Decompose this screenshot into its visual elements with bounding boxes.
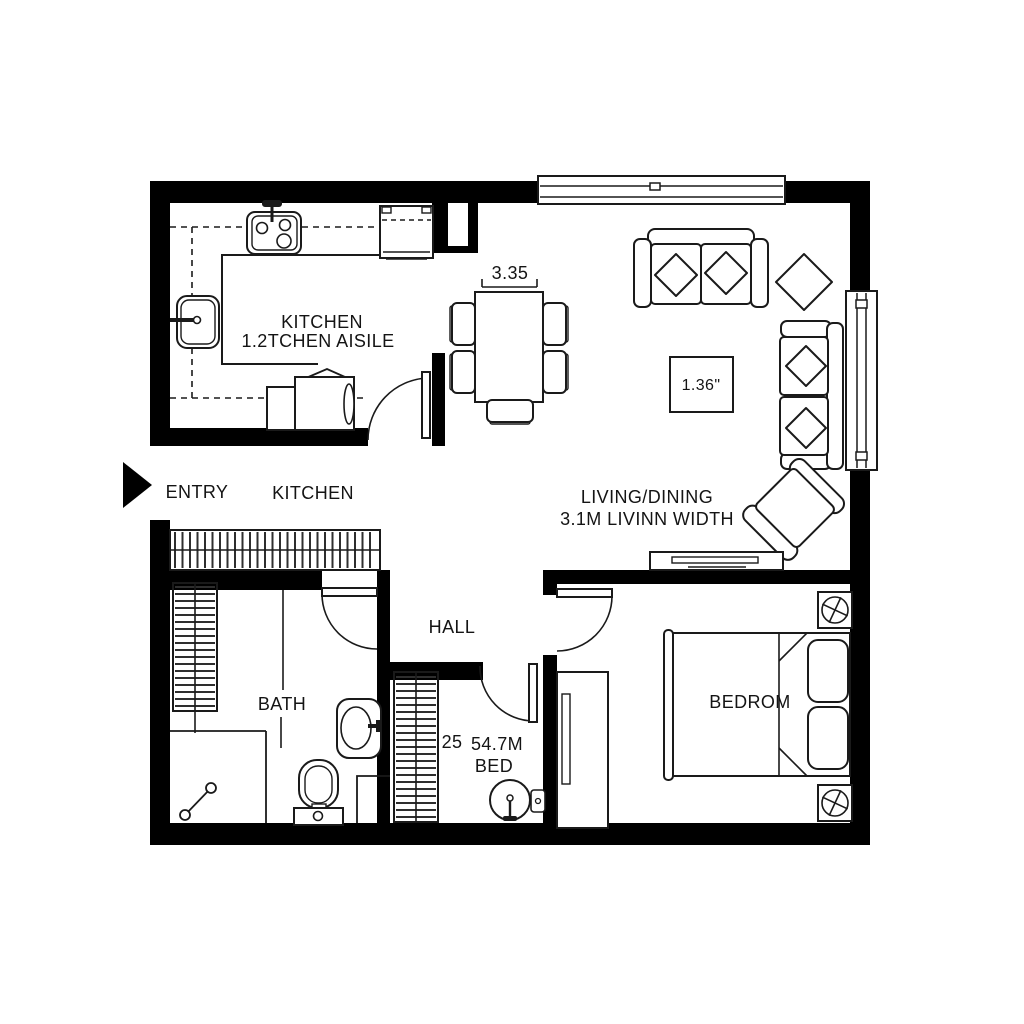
dining-chair [543,351,568,393]
duct-niche-hollow [448,203,468,246]
wall-kitchen-stub [432,353,445,446]
label-living-sub: 3.1M LIVINN WIDTH [560,509,734,529]
wc-door [480,664,537,722]
floor-plan-drawing: KITCHEN 1.2TCHEN AISILE 3.35 1.36" LIVIN… [0,0,1024,1024]
wc-shower-hatch [394,672,438,822]
bath-door [322,588,377,649]
label-entry-kitchen: KITCHEN [272,483,354,503]
dining-table [475,292,543,402]
label-kitchen-title: KITCHEN [281,312,363,332]
bed-pillow [808,640,848,702]
sofa-top [634,229,768,307]
armchair [740,456,847,563]
bath-partition-line [281,590,283,748]
kitchen-sink [247,201,301,254]
floor-plan-canvas: KITCHEN 1.2TCHEN AISILE 3.35 1.36" LIVIN… [0,0,1024,1024]
nightstand [816,591,853,628]
wall-right-lower [850,466,870,823]
entry-arrow-icon [123,462,152,508]
prep-sink [170,296,219,348]
shower-area [170,731,266,823]
floor-cushion [776,254,832,310]
label-kitchen-sub: 1.2TCHEN AISILE [241,331,394,351]
bedroom-furniture [557,591,854,828]
wall-top-left [150,181,540,203]
label-dining-width: 3.35 [492,263,529,283]
label-bedroom: BEDROM [709,692,790,712]
wall-bedroom-stub [543,570,557,595]
entry-closet [170,530,380,570]
label-hall: HALL [429,617,476,637]
label-wc-number: 25 [442,732,463,752]
label-entry: ENTRY [166,482,229,502]
dining-chair [543,303,568,345]
wall-left-lower [150,520,170,845]
kitchen-door [368,372,430,440]
tv-console [650,552,783,570]
wardrobe [557,672,608,828]
nightstand [816,784,853,821]
kitchen-island-desk [267,369,354,430]
window-right [846,291,877,470]
stove [380,206,433,259]
wall-left-upper [150,181,170,446]
label-wc-bed: BED [475,756,513,776]
label-bath: BATH [258,694,306,714]
wall-right-upper [850,203,870,295]
sofa-right [780,321,843,469]
dining-chair [450,303,475,345]
wall-bottom [150,823,870,845]
wall-living-bottom [557,570,870,584]
wc-toilet [490,780,545,821]
label-wc-area: 54.7M [471,734,523,754]
bath-sink [337,699,381,758]
label-coffee-table: 1.36" [682,377,721,394]
bath-radiator [173,583,217,733]
bed-pillow [808,707,848,769]
dining-set [450,279,568,424]
wall-top-right [783,181,870,203]
label-living-title: LIVING/DINING [581,487,713,507]
dining-chair [487,400,533,424]
dining-chair [450,351,475,393]
bedroom-door [557,589,612,651]
window-top [538,176,785,204]
bath-toilet [294,760,343,825]
